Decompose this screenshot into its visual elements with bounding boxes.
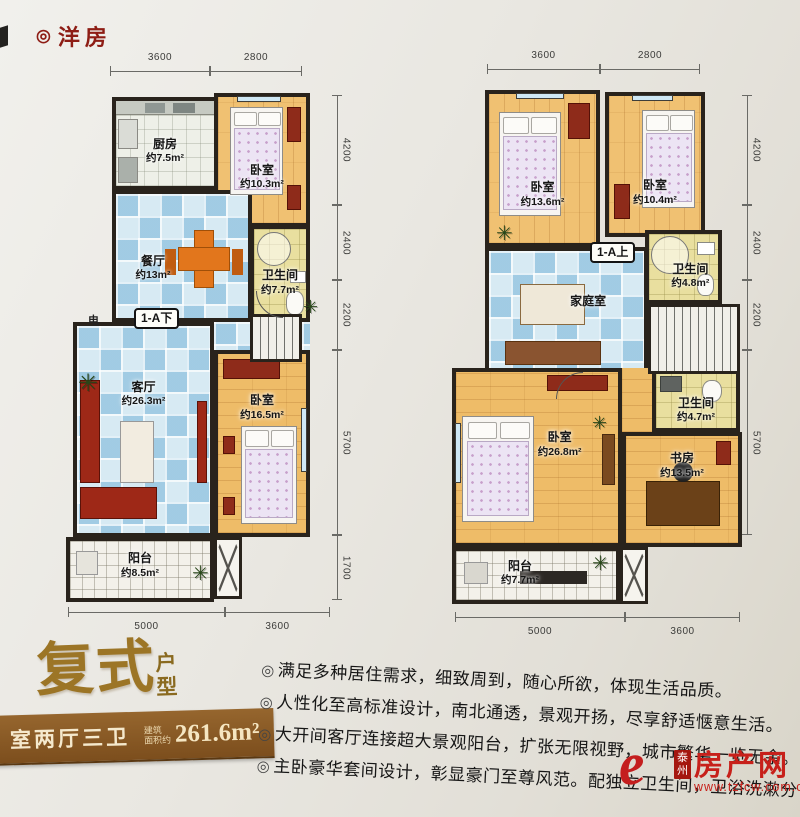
room-bedroom4: 卧室 约10.4m² <box>605 92 705 237</box>
dimension-label: 2400 <box>751 230 762 254</box>
dimension-label: 2200 <box>341 303 352 327</box>
room-area: 约13.5m² <box>626 467 738 481</box>
dimension-segment: 2400 <box>742 205 752 280</box>
room-label: 卧室 约13.6m² <box>489 180 596 209</box>
room-area: 约7.5m² <box>116 152 214 166</box>
room-name: 餐厅 <box>141 254 165 268</box>
dimension-segment: 3600 <box>625 612 740 622</box>
dimension-segment: 2400 <box>332 205 342 280</box>
pillow <box>670 115 693 131</box>
dimension-label: 4200 <box>341 138 352 162</box>
dimension-label: 3600 <box>626 626 739 637</box>
room-dining: 餐厅 约13m² <box>112 190 252 322</box>
banner-area-label: 建筑 面积约 <box>144 725 172 746</box>
dimension-segment: 3600 <box>110 66 210 76</box>
dimension-label: 1700 <box>341 555 352 579</box>
plant-icon: ✳ <box>78 372 98 396</box>
dimension-label: 5700 <box>751 430 762 454</box>
room-name: 阳台 <box>508 559 532 573</box>
room-label: 卧室 约26.8m² <box>479 430 641 459</box>
dimension-segment: 2200 <box>332 280 342 350</box>
dimension-label: 4200 <box>751 138 762 162</box>
room-area: 约13m² <box>87 269 219 283</box>
electric-label: 电 <box>88 312 99 328</box>
dimension-segment: 2800 <box>210 66 302 76</box>
dimension-label: 5000 <box>69 621 224 632</box>
pillow <box>258 112 280 127</box>
banner-rooms-text: 室两厅三卫 <box>10 721 131 754</box>
dimension-segment: 5700 <box>742 350 752 535</box>
room-label: 阳台 约8.5m² <box>70 551 210 580</box>
plant-icon: ✳ <box>496 224 513 244</box>
plant-icon: ✳ <box>592 554 609 574</box>
site-watermark: e 泰州 房产网 www.tzfcw.com.cn <box>618 742 800 812</box>
room-label: 厨房 约7.5m² <box>116 137 214 166</box>
dimension-segment: 4200 <box>332 95 342 205</box>
room-area: 约13.6m² <box>489 196 596 210</box>
pillow <box>234 112 256 127</box>
stove <box>173 103 195 113</box>
room-label: 卧室 约16.5m² <box>218 393 306 422</box>
banner-area-label-top: 建筑 <box>144 725 171 736</box>
banner-area-label-bottom: 面积约 <box>144 735 171 746</box>
room-area: 约7.7m² <box>254 284 306 298</box>
pillow <box>503 117 529 134</box>
room-name: 客厅 <box>131 380 155 394</box>
dimension-segment: 2200 <box>742 280 752 350</box>
hall-floor <box>622 368 652 432</box>
shower <box>257 232 291 266</box>
coffee-table <box>120 421 155 483</box>
scan-edge-mark <box>0 25 8 49</box>
watermark-site-name: 房产网 <box>694 742 790 784</box>
desk <box>646 481 720 526</box>
unit-banner: 室两厅三卫 建筑 面积约 261.6m² <box>0 708 275 766</box>
plant-icon: ✳ <box>303 298 318 316</box>
floor-plan-lower: 厨房 约7.5m² 卧室 约10.3m² 餐厅 约13m² <box>60 58 345 620</box>
sink <box>145 103 165 113</box>
dimension-segment: 3600 <box>487 64 600 74</box>
room-name: 卧室 <box>530 180 554 194</box>
dimension-label: 3600 <box>488 50 599 61</box>
dimension-bottom: 5000 3600 <box>68 607 330 617</box>
room-master: 卧室 约26.8m² <box>452 368 622 547</box>
bullet-icon: ◎ <box>256 758 270 776</box>
sink <box>697 242 715 255</box>
chair <box>232 249 243 275</box>
page-title-text: 洋房 <box>58 20 112 52</box>
title-bullet-icon: ◎ <box>36 26 51 46</box>
window <box>632 95 673 101</box>
room-label: 卫生间 约7.7m² <box>254 268 306 297</box>
room-area: 约10.3m² <box>218 178 306 192</box>
room-area: 约26.8m² <box>479 446 641 460</box>
dimension-segment: 4200 <box>742 95 752 205</box>
nightstand <box>223 436 234 454</box>
room-name: 厨房 <box>153 137 177 151</box>
dimension-bottom: 5000 3600 <box>455 612 740 622</box>
dimension-segment: 5000 <box>455 612 625 622</box>
bullet-icon: ◎ <box>259 694 273 712</box>
room-name: 卧室 <box>250 393 274 407</box>
room-label: 家庭室 <box>511 294 666 310</box>
room-kitchen: 厨房 约7.5m² <box>112 97 218 190</box>
sofa <box>80 487 157 518</box>
floor-tag: 1-A下 <box>134 308 179 329</box>
dimension-segment: 2800 <box>600 64 700 74</box>
room-living: 客厅 约26.3m² <box>73 322 214 537</box>
dimension-segment: 1700 <box>332 535 342 600</box>
room-area: 约26.3m² <box>77 395 210 409</box>
tv-cabinet <box>197 401 208 484</box>
elevator-shaft <box>620 547 648 604</box>
room-name: 卧室 <box>250 163 274 177</box>
room-label: 卫生间 约4.7m² <box>656 396 736 425</box>
nightstand <box>223 497 234 515</box>
pillow <box>245 430 269 446</box>
dimension-segment: 3600 <box>225 607 330 617</box>
dimension-right: 4200 2400 2200 5700 1700 <box>332 95 342 600</box>
elevator-shaft <box>214 537 242 599</box>
headline-sub: 户型 <box>155 652 181 701</box>
room-area: 约7.7m² <box>440 574 600 588</box>
room-bath-lower: 卫生间 约4.7m² <box>652 368 740 432</box>
wardrobe <box>287 107 301 142</box>
room-area: 约8.5m² <box>70 567 210 581</box>
room-name: 书房 <box>670 451 694 465</box>
dimension-label: 2800 <box>601 50 699 61</box>
room-name: 卫生间 <box>672 262 708 276</box>
window <box>516 93 564 99</box>
room-name: 卧室 <box>643 178 667 192</box>
staircase <box>648 304 740 374</box>
room-area: 约10.4m² <box>609 194 701 208</box>
page-title: ◎ 洋房 <box>36 20 112 52</box>
dimension-label: 3600 <box>111 52 209 63</box>
elevator-x-icon <box>217 540 239 596</box>
pillow <box>646 115 669 131</box>
plant-icon: ✳ <box>192 564 209 584</box>
banner-area-value: 261.6m² <box>175 718 260 748</box>
watermark-city: 泰州 <box>674 750 691 779</box>
pillow <box>271 430 295 446</box>
room-name: 卧室 <box>548 430 572 444</box>
room-label: 卧室 约10.4m² <box>609 178 701 207</box>
room-name: 卫生间 <box>678 396 714 410</box>
floor-plan-upper: 卧室 约13.6m² 卧室 约10.4m² 家庭室 卫生间 约4.8m² <box>450 58 745 620</box>
wardrobe <box>568 103 589 139</box>
wardrobe <box>223 359 279 379</box>
plant-icon: ✳ <box>592 414 607 432</box>
elevator-x-icon <box>623 550 645 601</box>
dimension-top: 3600 2800 <box>110 66 302 76</box>
dimension-label: 2400 <box>341 230 352 254</box>
watermark-url: www.tzfcw.com.cn <box>694 780 800 794</box>
room-name: 家庭室 <box>570 294 606 308</box>
room-area: 约16.5m² <box>218 409 306 423</box>
dimension-segment: 5700 <box>332 350 342 535</box>
dimension-label: 3600 <box>226 621 329 632</box>
site-logo-icon: e <box>615 733 648 795</box>
blanket <box>245 449 294 518</box>
room-label: 卧室 约10.3m² <box>218 163 306 192</box>
room-label: 阳台 约7.7m² <box>440 559 600 588</box>
bed <box>241 426 297 524</box>
dimension-top: 3600 2800 <box>487 64 700 74</box>
window <box>455 423 461 483</box>
room-name: 卫生间 <box>262 268 298 282</box>
room-family: 家庭室 <box>485 247 648 374</box>
staircase <box>250 314 302 362</box>
dimension-label: 2800 <box>211 52 301 63</box>
room-area: 约4.7m² <box>656 411 736 425</box>
window <box>237 96 281 102</box>
sink <box>660 376 682 392</box>
room-label: 卫生间 约4.8m² <box>656 262 725 291</box>
bullet-icon: ◎ <box>261 662 275 680</box>
room-area: 约4.8m² <box>656 277 725 291</box>
room-label: 餐厅 约13m² <box>87 254 219 283</box>
dimension-right: 4200 2400 2200 5700 <box>742 95 752 535</box>
room-name: 阳台 <box>128 551 152 565</box>
headline: 复式 <box>35 638 157 700</box>
room-label: 书房 约13.5m² <box>626 451 738 480</box>
sofa <box>505 341 601 365</box>
dimension-label: 5000 <box>456 626 624 637</box>
dimension-label: 2200 <box>751 303 762 327</box>
dimension-segment: 5000 <box>68 607 225 617</box>
dimension-label: 5700 <box>341 430 352 454</box>
pillow <box>531 117 557 134</box>
room-bedroom-main: 卧室 约16.5m² <box>214 350 310 537</box>
room-bathroom: 卫生间 约7.7m² <box>250 225 310 322</box>
bullet-icon: ◎ <box>258 726 272 744</box>
floor-tag: 1-A上 <box>590 242 635 263</box>
